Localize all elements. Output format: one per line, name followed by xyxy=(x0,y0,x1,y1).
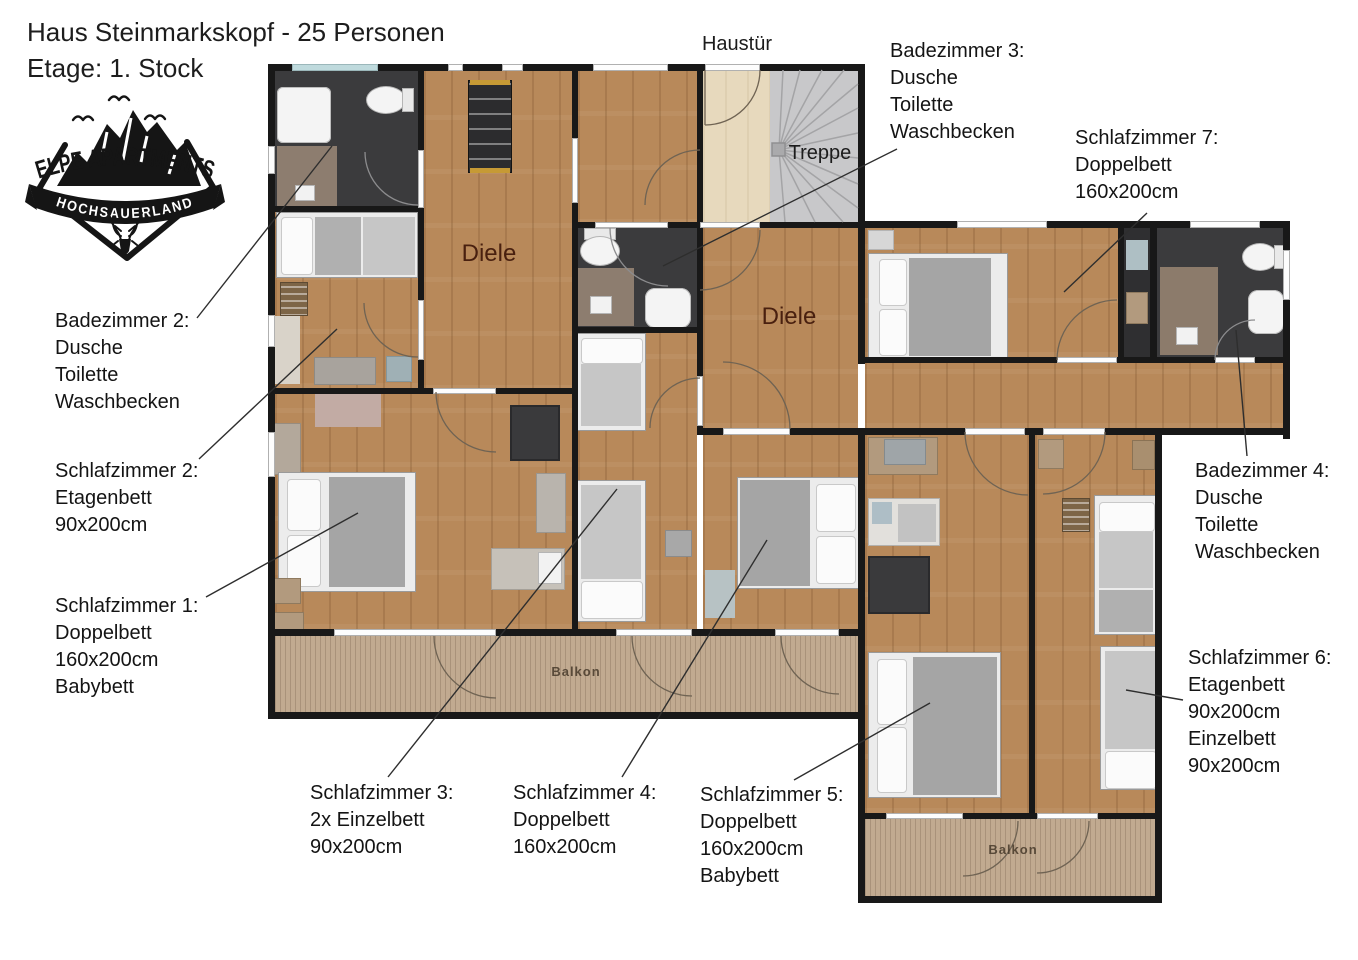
wall xyxy=(697,70,703,428)
wall xyxy=(1118,225,1124,357)
wall xyxy=(268,712,865,719)
front-door-sill xyxy=(705,64,760,71)
double-bed xyxy=(278,472,416,592)
rug xyxy=(315,392,381,427)
annotation-schlafzimmer-2: Schlafzimmer 2: Etagenbett 90x200cm xyxy=(55,458,198,539)
rug xyxy=(272,316,300,384)
annotation-badezimmer-2: Badezimmer 2: Dusche Toilette Waschbecke… xyxy=(55,308,190,416)
shelf-box xyxy=(1126,292,1148,324)
room-corridor-entry xyxy=(578,70,697,224)
door-sill xyxy=(965,428,1025,435)
window xyxy=(1190,221,1260,228)
door-sill xyxy=(1215,357,1255,363)
side-table xyxy=(1038,439,1064,469)
tv-icon xyxy=(868,556,930,614)
label-haustuer: Haustür xyxy=(662,33,812,56)
balcony-door-sill xyxy=(334,629,496,636)
window xyxy=(268,146,275,174)
washbasin-icon xyxy=(295,185,315,201)
desk xyxy=(491,548,565,590)
door-sill xyxy=(418,150,424,208)
side-table xyxy=(1132,440,1155,470)
window xyxy=(292,64,378,71)
bunk-bed xyxy=(1094,495,1156,635)
washbasin-icon xyxy=(645,288,691,328)
annotation-schlafzimmer-5: Schlafzimmer 5: Doppelbett 160x200cm Bab… xyxy=(700,782,843,890)
double-bed xyxy=(868,253,1008,359)
annotation-schlafzimmer-4: Schlafzimmer 4: Doppelbett 160x200cm xyxy=(513,780,656,861)
dresser xyxy=(884,439,926,465)
wall xyxy=(272,206,418,212)
label-treppe: Treppe xyxy=(780,142,860,165)
toilet-icon xyxy=(580,236,620,266)
toilet-icon xyxy=(366,86,406,114)
balcony-door-sill xyxy=(1037,813,1098,819)
window xyxy=(268,315,275,347)
single-bed xyxy=(576,480,646,622)
vanity-desk xyxy=(868,498,940,546)
annotation-schlafzimmer-6: Schlafzimmer 6: Etagenbett 90x200cm Einz… xyxy=(1188,645,1331,780)
single-bed xyxy=(1100,646,1158,790)
wall xyxy=(1029,435,1035,819)
tv-icon xyxy=(510,405,560,461)
side-table xyxy=(274,578,301,604)
ladder-icon xyxy=(1062,498,1090,532)
elpe-apartments-logo: ELPE APARTMENTS HOCHSAUERLAND xyxy=(25,90,225,268)
window xyxy=(448,64,463,71)
door-sill xyxy=(433,388,496,394)
shower-icon xyxy=(1160,267,1218,355)
door-sill xyxy=(1043,428,1105,435)
page-title: Haus Steinmarkskopf - 25 Personen xyxy=(27,17,445,48)
window xyxy=(1283,250,1290,300)
label-balkon-2: Balkon xyxy=(973,842,1053,857)
runner-rug xyxy=(468,80,512,173)
label-diele-1: Diele xyxy=(449,240,529,268)
door-sill xyxy=(723,428,790,435)
toilet-tank xyxy=(402,88,414,112)
window xyxy=(957,221,1047,228)
wall xyxy=(1155,428,1162,903)
toilet-icon xyxy=(1242,243,1278,271)
single-bed xyxy=(576,333,646,431)
double-bed xyxy=(868,652,1001,798)
shelf-box xyxy=(1126,240,1148,270)
wall xyxy=(858,428,865,903)
window xyxy=(593,64,668,71)
balcony-right xyxy=(865,819,1155,896)
wall xyxy=(572,327,703,333)
washbasin-icon xyxy=(590,296,612,314)
rug xyxy=(705,570,735,618)
annotation-schlafzimmer-1: Schlafzimmer 1: Doppelbett 160x200cm Bab… xyxy=(55,593,198,701)
label-balkon-1: Balkon xyxy=(536,664,616,679)
wall xyxy=(1150,227,1157,357)
bunk-bed xyxy=(276,212,418,278)
wall xyxy=(272,388,578,394)
page-subtitle: Etage: 1. Stock xyxy=(27,53,203,84)
room-corridor-right xyxy=(865,363,1283,428)
door-sill xyxy=(418,300,424,360)
dresser xyxy=(665,530,692,557)
balcony-door-sill xyxy=(775,629,839,636)
door-sill xyxy=(595,222,668,228)
washbasin-icon xyxy=(1248,290,1284,334)
dresser xyxy=(274,423,301,475)
annotation-badezimmer-3: Badezimmer 3: Dusche Toilette Waschbecke… xyxy=(890,38,1025,146)
door-sill xyxy=(700,222,760,228)
window xyxy=(502,64,523,71)
double-bed xyxy=(737,477,859,589)
annotation-badezimmer-4: Badezimmer 4: Dusche Toilette Waschbecke… xyxy=(1195,458,1330,566)
door-sill xyxy=(697,376,703,426)
annotation-schlafzimmer-3: Schlafzimmer 3: 2x Einzelbett 90x200cm xyxy=(310,780,453,861)
bench xyxy=(314,357,376,385)
dresser xyxy=(536,473,566,533)
room-haustuer-entry xyxy=(703,70,770,224)
annotation-schlafzimmer-7: Schlafzimmer 7: Doppelbett 160x200cm xyxy=(1075,125,1218,206)
label-diele-2: Diele xyxy=(749,303,829,331)
door-sill xyxy=(1057,357,1117,363)
wall xyxy=(858,64,865,364)
birds-icon xyxy=(73,97,165,121)
window xyxy=(268,432,275,477)
nightstand xyxy=(868,230,894,250)
balcony-door-sill xyxy=(616,629,692,636)
ladder-icon xyxy=(280,282,308,316)
side-table xyxy=(386,356,412,382)
floor-plan-page: Haus Steinmarkskopf - 25 Personen Etage:… xyxy=(0,0,1358,960)
wall xyxy=(858,896,1162,903)
shower-icon xyxy=(277,87,331,143)
balcony-door-sill xyxy=(886,813,963,819)
door-sill xyxy=(572,138,578,203)
